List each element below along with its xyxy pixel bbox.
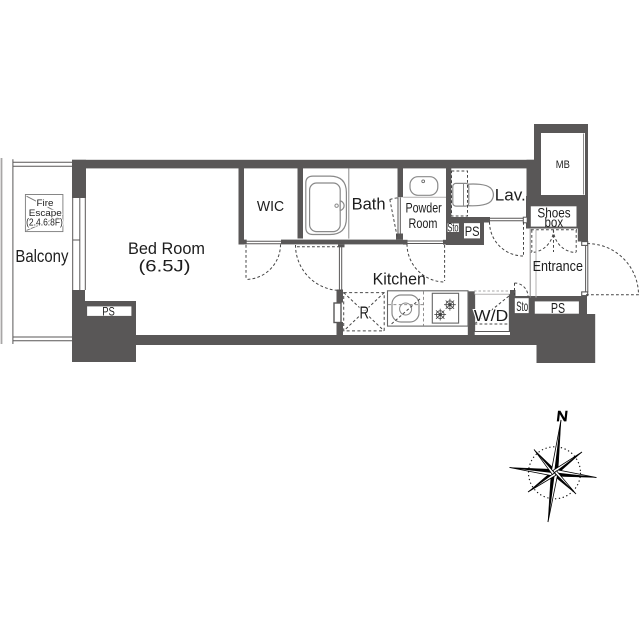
svg-text:R: R	[359, 303, 369, 323]
svg-text:W/D: W/D	[474, 308, 508, 325]
svg-text:Balcony: Balcony	[15, 246, 68, 266]
svg-text:Powder: Powder	[405, 201, 442, 217]
svg-text:Bed Room: Bed Room	[128, 239, 205, 258]
svg-text:Escape: Escape	[29, 207, 62, 218]
svg-text:Room: Room	[409, 216, 438, 232]
svg-text:WIC: WIC	[257, 199, 284, 215]
svg-text:Kitchen: Kitchen	[373, 270, 426, 288]
svg-text:(6.5J): (6.5J)	[139, 256, 191, 275]
svg-text:PS: PS	[465, 224, 480, 239]
svg-text:(2.4.6.8F): (2.4.6.8F)	[26, 217, 63, 228]
svg-text:PS: PS	[102, 305, 115, 319]
svg-text:PS: PS	[551, 301, 565, 317]
svg-text:Lav.: Lav.	[495, 186, 526, 204]
svg-text:Sto: Sto	[448, 223, 459, 235]
svg-text:Sto: Sto	[516, 298, 528, 314]
svg-text:Bath: Bath	[352, 196, 386, 214]
svg-text:Entrance: Entrance	[533, 258, 583, 275]
svg-text:MB: MB	[556, 159, 570, 171]
svg-text:box: box	[544, 215, 563, 231]
